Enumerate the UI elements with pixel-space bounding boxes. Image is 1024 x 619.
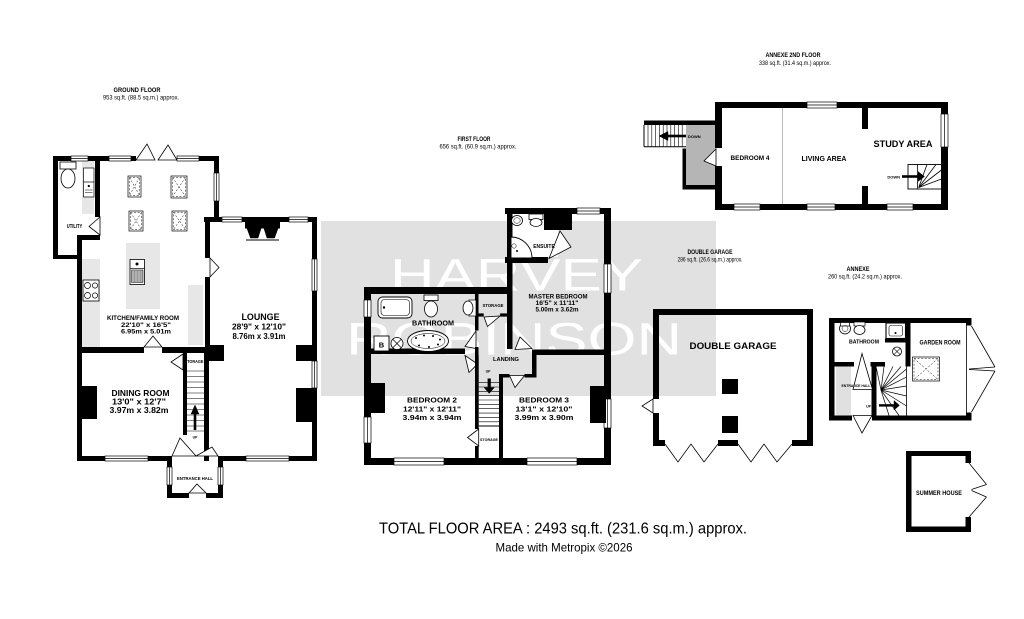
svg-text:BEDROOM 4: BEDROOM 4 xyxy=(731,155,770,162)
svg-text:953 sq.ft. (88.5 sq.m.) approx: 953 sq.ft. (88.5 sq.m.) approx. xyxy=(103,95,179,102)
svg-text:3.94m x 3.94m: 3.94m x 3.94m xyxy=(403,413,462,422)
svg-text:BEDROOM 2: BEDROOM 2 xyxy=(407,396,457,405)
svg-text:338 sq.ft. (31.4 sq.m.) approx: 338 sq.ft. (31.4 sq.m.) approx. xyxy=(759,60,831,67)
svg-text:ENTRANCE HALL: ENTRANCE HALL xyxy=(177,476,213,481)
svg-text:STORAGE: STORAGE xyxy=(185,359,204,364)
svg-text:TOTAL FLOOR AREA : 2493 sq.ft.: TOTAL FLOOR AREA : 2493 sq.ft. (231.6 sq… xyxy=(379,521,747,538)
svg-text:ANNEXE 2ND FLOOR: ANNEXE 2ND FLOOR xyxy=(766,52,821,59)
svg-text:STORAGE: STORAGE xyxy=(483,303,504,308)
svg-text:GROUND FLOOR: GROUND FLOOR xyxy=(114,87,161,94)
svg-text:FIRST FLOOR: FIRST FLOOR xyxy=(458,136,491,143)
svg-text:286 sq.ft. (26.6 sq.m.) approx: 286 sq.ft. (26.6 sq.m.) approx. xyxy=(678,257,743,264)
svg-text:DOWN: DOWN xyxy=(887,175,900,180)
svg-text:8.76m x 3.91m: 8.76m x 3.91m xyxy=(233,332,286,341)
svg-text:DINING ROOM: DINING ROOM xyxy=(112,388,170,398)
svg-text:Made with Metropix ©2026: Made with Metropix ©2026 xyxy=(496,541,633,555)
svg-text:5.00m x 3.62m: 5.00m x 3.62m xyxy=(536,306,579,313)
svg-text:ENTRANCE HALL: ENTRANCE HALL xyxy=(842,384,872,388)
svg-text:ANNEXE: ANNEXE xyxy=(847,266,871,273)
svg-text:3.97m x 3.82m: 3.97m x 3.82m xyxy=(110,406,169,415)
svg-text:STORAGE: STORAGE xyxy=(480,437,498,442)
svg-text:UP: UP xyxy=(193,436,199,440)
svg-text:UP: UP xyxy=(486,370,492,374)
svg-text:28'9" x 12'10": 28'9" x 12'10" xyxy=(232,323,286,332)
svg-text:656 sq.ft. (60.9 sq.m.) approx: 656 sq.ft. (60.9 sq.m.) approx. xyxy=(440,144,517,151)
svg-text:LOUNGE: LOUNGE xyxy=(242,312,280,323)
svg-text:LANDING: LANDING xyxy=(493,357,519,363)
svg-text:SUMMER HOUSE: SUMMER HOUSE xyxy=(916,490,962,497)
svg-text:LIVING AREA: LIVING AREA xyxy=(802,154,847,163)
svg-text:UTILITY: UTILITY xyxy=(67,224,83,230)
svg-text:BEDROOM 3: BEDROOM 3 xyxy=(519,396,569,405)
svg-text:260 sq.ft. (24.2 sq.m.) approx: 260 sq.ft. (24.2 sq.m.) approx. xyxy=(828,274,902,281)
svg-text:6.95m x 5.01m: 6.95m x 5.01m xyxy=(121,329,171,336)
svg-text:B: B xyxy=(379,341,385,350)
svg-text:BATHROOM: BATHROOM xyxy=(412,321,454,328)
svg-text:DOUBLE GARAGE: DOUBLE GARAGE xyxy=(688,249,734,256)
svg-text:ENSUITE: ENSUITE xyxy=(533,244,555,250)
svg-text:BATHROOM: BATHROOM xyxy=(849,340,879,346)
svg-text:DOUBLE GARAGE: DOUBLE GARAGE xyxy=(690,341,777,352)
svg-text:UP: UP xyxy=(866,405,872,409)
svg-text:KITCHEN/FAMILY ROOM: KITCHEN/FAMILY ROOM xyxy=(107,315,179,322)
svg-text:GARDEN ROOM: GARDEN ROOM xyxy=(920,341,961,347)
svg-text:DOWN: DOWN xyxy=(688,134,701,139)
svg-text:STUDY AREA: STUDY AREA xyxy=(874,139,934,149)
svg-text:3.99m x 3.90m: 3.99m x 3.90m xyxy=(515,413,574,422)
